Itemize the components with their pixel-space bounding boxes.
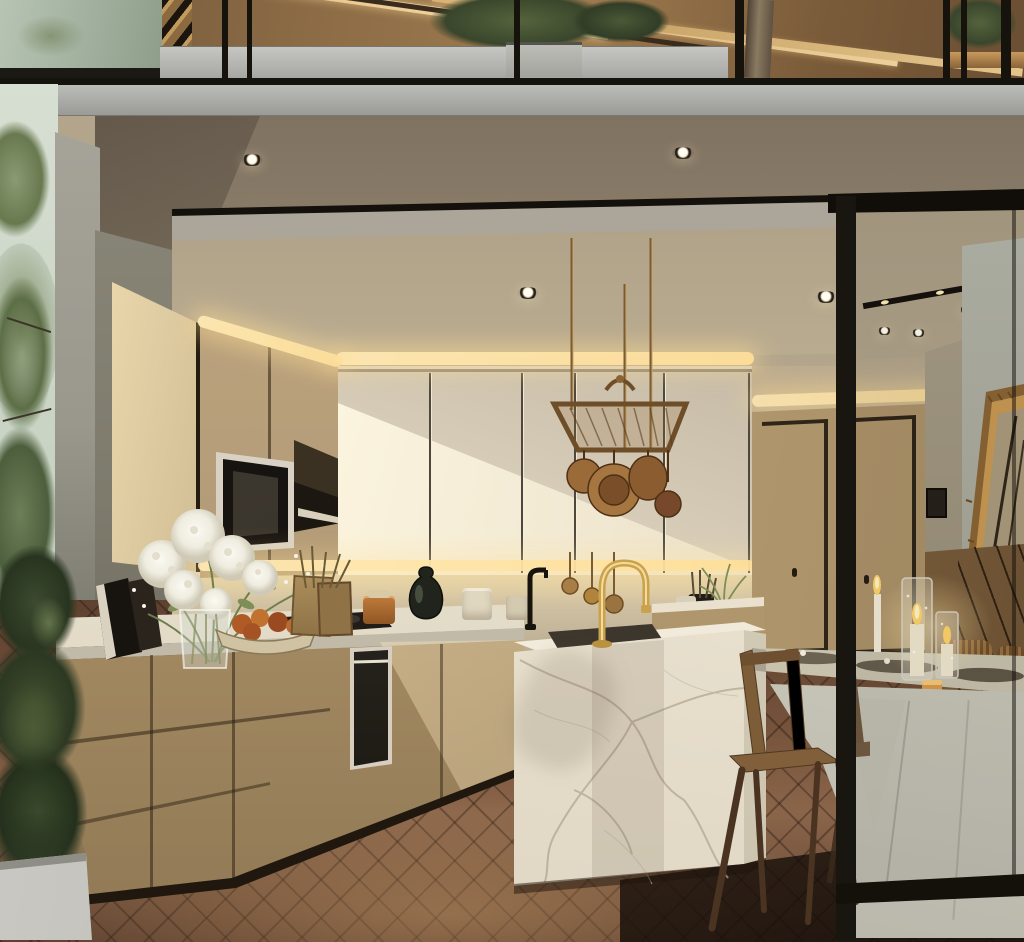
door-gap [521, 373, 523, 573]
copper-pans [567, 456, 681, 517]
wall-above-pantry [752, 366, 838, 416]
door-gap [429, 373, 431, 573]
slab-edge-line [0, 78, 1024, 85]
interior-scene [0, 0, 1024, 942]
fascia-band [0, 85, 1024, 116]
tree-trunk [744, 0, 774, 79]
downlight [672, 147, 694, 159]
jar-lid [368, 590, 390, 598]
door-knob [792, 568, 797, 577]
ceramic-canister [462, 588, 492, 620]
amber-jar [363, 596, 395, 624]
railing-post [961, 0, 967, 84]
downlight [815, 291, 837, 303]
conifer-highlight [24, 588, 74, 658]
door-gap [748, 373, 750, 573]
outdoor-foliage [0, 104, 60, 254]
mezzanine-bench [946, 52, 1024, 68]
dried-twigs [296, 544, 356, 588]
railing-post [247, 0, 252, 84]
railing-post [1001, 0, 1011, 84]
glass-edge-line [1012, 210, 1016, 878]
railing-post [943, 0, 950, 84]
railing-post [222, 0, 228, 84]
railing-post [735, 0, 744, 84]
pot-rack [540, 238, 700, 538]
black-faucet [516, 562, 560, 632]
downlight [241, 154, 263, 166]
railing-post [514, 0, 520, 84]
tree-reflection [6, 8, 96, 64]
downlight [517, 287, 539, 299]
chair-back-rails [740, 649, 806, 762]
left-glass-window [0, 0, 162, 70]
glass-rail-cap [160, 46, 728, 79]
mezzanine [0, 0, 1024, 84]
dark-vase [402, 564, 450, 626]
cutting-board [317, 581, 353, 636]
gold-faucet [580, 545, 680, 655]
